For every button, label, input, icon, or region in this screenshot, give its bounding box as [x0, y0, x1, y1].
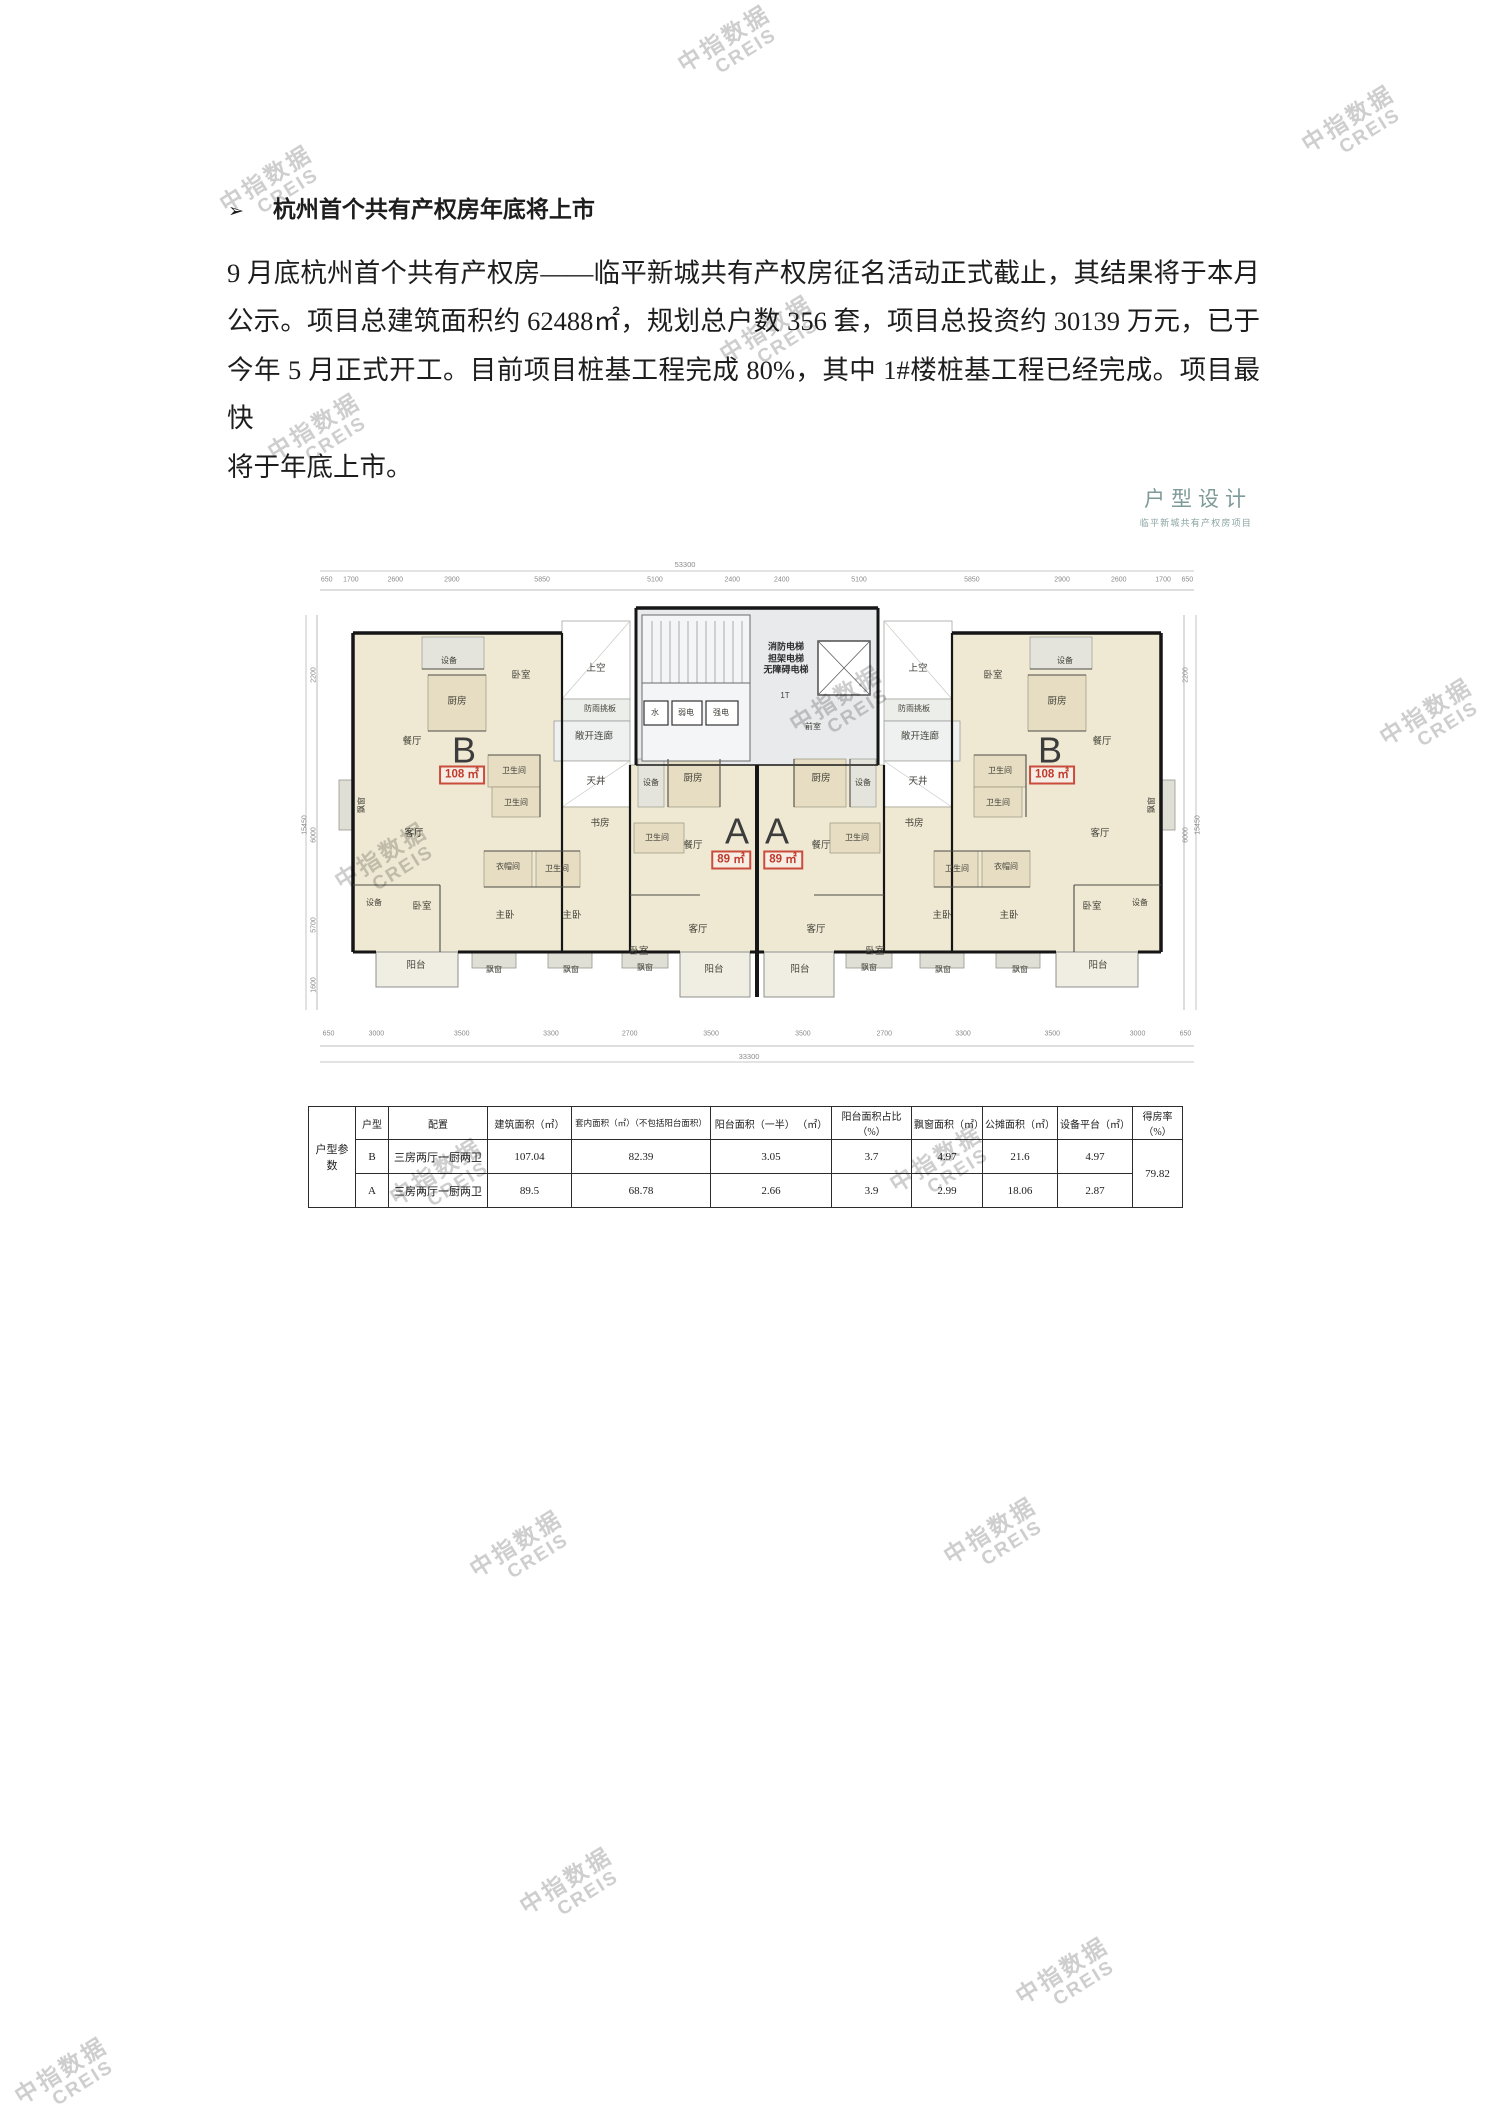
watermark: 中指数据CREIS — [1008, 1927, 1124, 2027]
dimension-label: 2200 — [1181, 667, 1190, 683]
dimension-label: 3300 — [955, 1029, 971, 1038]
room-label: 设备 — [643, 778, 659, 788]
room-label: 阳台 — [704, 964, 723, 976]
room-label: 飘窗 — [357, 797, 367, 813]
room-label: 餐厅 — [811, 840, 830, 852]
table-row-unit-a: A 三房两厅一厨两卫 89.5 68.78 2.66 3.9 2.99 18.0… — [309, 1174, 1183, 1208]
col-header-balcony-ratio: 阳台面积占比（%） — [832, 1107, 912, 1140]
cell-gross-area: 107.04 — [488, 1140, 572, 1174]
unit-area-badge: 89 ㎡ — [711, 851, 751, 870]
room-label: 飘窗 — [861, 963, 877, 973]
room-label: 主卧 — [999, 910, 1018, 922]
room-label: 厨房 — [683, 773, 702, 785]
dimension-total: 33300 — [739, 1052, 760, 1062]
room-label: 书房 — [590, 818, 609, 830]
dimension-label: 6000 — [309, 827, 318, 843]
dimension-label: 3500 — [454, 1029, 470, 1038]
room-label: 厨房 — [811, 773, 830, 785]
room-label: 飘窗 — [935, 965, 951, 975]
dimension-label: 5850 — [964, 575, 980, 584]
floorplan-subtitle: 临平新城共有产权房项目 — [1040, 516, 1252, 529]
room-label: 阳台 — [406, 960, 425, 972]
table-group-label: 户型参数 — [309, 1107, 356, 1208]
dimension-label: 3000 — [369, 1029, 385, 1038]
dimension-label: 2900 — [444, 575, 460, 584]
unit-area-badge: 108 ㎡ — [439, 766, 485, 785]
dimension-label: 3300 — [543, 1029, 559, 1038]
room-label: 飘窗 — [637, 963, 653, 973]
cell-balcony-area: 3.05 — [711, 1140, 832, 1174]
watermark: 中指数据CREIS — [1372, 668, 1488, 768]
room-label: 卧室 — [412, 901, 431, 913]
dimension-label: 5700 — [309, 917, 318, 933]
room-label: 卧室 — [1082, 901, 1101, 913]
dimension-label: 5100 — [851, 575, 867, 584]
floorplan-title-block: 户型设计 临平新城共有产权房项目 — [1040, 483, 1252, 529]
floorplan-figure: 消防电梯 担架电梯 无障碍电梯1T水弱电强电前室上空上空防雨挑板防雨挑板敞开连廊… — [300, 555, 1220, 1087]
col-header-baywindow-area: 飘窗面积（㎡） — [912, 1107, 983, 1140]
unit-spec-table: 户型参数 户型 配置 建筑面积（㎡） 套内面积（㎡）（不包括阳台面积） 阳台面积… — [308, 1106, 1183, 1208]
document-page: 中指数据CREIS中指数据CREIS中指数据CREIS中指数据CREIS中指数据… — [0, 0, 1488, 2104]
room-label: 上空 — [908, 663, 927, 675]
col-header-equipment-platform: 设备平台（㎡） — [1058, 1107, 1133, 1140]
cell-balcony-ratio: 3.9 — [832, 1174, 912, 1208]
floorplan-title: 户型设计 — [1040, 483, 1252, 513]
room-label: 阳台 — [1088, 960, 1107, 972]
room-label: 天井 — [586, 776, 605, 788]
room-label: 敞开连廊 — [901, 731, 939, 743]
dimension-total: 53300 — [675, 560, 696, 570]
room-label: 敞开连廊 — [575, 731, 613, 743]
room-label: 飘窗 — [1012, 965, 1028, 975]
col-header-config: 配置 — [389, 1107, 488, 1140]
room-label: 衣帽间 — [994, 862, 1018, 872]
room-label: 餐厅 — [402, 736, 421, 748]
unit-type-label: A — [765, 809, 789, 856]
cell-config: 三房两厅一厨两卫 — [389, 1174, 488, 1208]
unit-type-label: A — [725, 809, 749, 856]
cell-config: 三房两厅一厨两卫 — [389, 1140, 488, 1174]
dimension-label: 1600 — [309, 977, 318, 993]
cell-shared-area: 18.06 — [983, 1174, 1058, 1208]
room-label: 餐厅 — [1092, 736, 1111, 748]
room-label: 弱电 — [678, 708, 694, 718]
room-label: 书房 — [904, 818, 923, 830]
cell-balcony-area: 2.66 — [711, 1174, 832, 1208]
room-label: 上空 — [586, 663, 605, 675]
room-label: 卧室 — [865, 946, 884, 958]
dimension-label: 650 — [323, 1029, 335, 1038]
arrow-bullet-icon: ➢ — [228, 200, 244, 222]
dimension-label: 5850 — [534, 575, 550, 584]
dimension-label: 2400 — [774, 575, 790, 584]
paragraph-line: 公示。项目总建筑面积约 62488㎡，规划总户数 356 套，项目总投资约 30… — [227, 297, 1260, 345]
room-label: 设备 — [1057, 656, 1073, 666]
table-row-unit-b: B 三房两厅一厨两卫 107.04 82.39 3.05 3.7 4.97 21… — [309, 1140, 1183, 1174]
watermark: 中指数据CREIS — [0, 1542, 3, 1642]
cell-shared-area: 21.6 — [983, 1140, 1058, 1174]
room-label: 飘窗 — [563, 965, 579, 975]
room-label: 阳台 — [790, 964, 809, 976]
col-header-efficiency: 得房率（%） — [1133, 1107, 1183, 1140]
dimension-label: 3500 — [1044, 1029, 1060, 1038]
cell-baywindow-area: 4.97 — [912, 1140, 983, 1174]
room-label: 卫生间 — [504, 798, 528, 808]
watermark: 中指数据CREIS — [936, 1487, 1052, 1587]
watermark: 中指数据CREIS — [0, 925, 3, 1025]
col-header-unit-type: 户型 — [356, 1107, 389, 1140]
col-header-shared-area: 公摊面积（㎡） — [983, 1107, 1058, 1140]
dimension-label: 15450 — [300, 815, 309, 834]
dimension-label: 15450 — [1193, 815, 1202, 834]
room-label: 卫生间 — [502, 766, 526, 776]
dimension-label: 650 — [1180, 1029, 1192, 1038]
cell-efficiency-merged: 79.82 — [1133, 1140, 1183, 1208]
room-label: 消防电梯 担架电梯 无障碍电梯 — [763, 641, 808, 676]
room-label: 卫生间 — [845, 833, 869, 843]
paragraph-line: 今年 5 月正式开工。目前项目桩基工程完成 80%，其中 1#楼桩基工程已经完成… — [227, 346, 1260, 443]
room-label: 主卧 — [562, 910, 581, 922]
dimension-label: 3500 — [703, 1029, 719, 1038]
cell-unit-type: A — [356, 1174, 389, 1208]
cell-equipment-platform: 4.97 — [1058, 1140, 1133, 1174]
dimension-label: 2200 — [309, 667, 318, 683]
dimension-label: 2600 — [1111, 575, 1127, 584]
dimension-label: 6000 — [1181, 827, 1190, 843]
room-label: 主卧 — [932, 910, 951, 922]
cell-equipment-platform: 2.87 — [1058, 1174, 1133, 1208]
section-heading-text: 杭州首个共有产权房年底将上市 — [273, 197, 595, 222]
dimension-label: 1700 — [1155, 575, 1171, 584]
cell-baywindow-area: 2.99 — [912, 1174, 983, 1208]
room-label: 水 — [651, 708, 659, 718]
room-label: 客厅 — [806, 924, 825, 936]
room-label: 飘窗 — [1147, 797, 1157, 813]
watermark: 中指数据CREIS — [670, 0, 786, 95]
col-header-balcony-area: 阳台面积（一半） （㎡） — [711, 1107, 832, 1140]
room-label: 前室 — [805, 722, 821, 732]
room-label: 卫生间 — [986, 798, 1010, 808]
room-label: 设备 — [855, 778, 871, 788]
room-label: 餐厅 — [683, 840, 702, 852]
cell-gross-area: 89.5 — [488, 1174, 572, 1208]
room-label: 设备 — [441, 656, 457, 666]
section-heading: ➢杭州首个共有产权房年底将上市 — [228, 190, 595, 224]
room-label: 衣帽间 — [496, 862, 520, 872]
room-label: 卫生间 — [988, 766, 1012, 776]
room-label: 客厅 — [1090, 828, 1109, 840]
cell-interior-area: 68.78 — [572, 1174, 711, 1208]
cell-interior-area: 82.39 — [572, 1140, 711, 1174]
watermark: 中指数据CREIS — [7, 2027, 123, 2104]
dimension-label: 1700 — [343, 575, 359, 584]
room-label: 卧室 — [511, 670, 530, 682]
room-label: 设备 — [1132, 898, 1148, 908]
table-header-row: 户型参数 户型 配置 建筑面积（㎡） 套内面积（㎡）（不包括阳台面积） 阳台面积… — [309, 1107, 1183, 1140]
dimension-label: 2600 — [387, 575, 403, 584]
room-label: 防雨挑板 — [584, 704, 616, 714]
floorplan-labels: 消防电梯 担架电梯 无障碍电梯1T水弱电强电前室上空上空防雨挑板防雨挑板敞开连廊… — [300, 555, 1220, 1087]
unit-area-badge: 108 ㎡ — [1029, 766, 1075, 785]
room-label: 飘窗 — [486, 965, 502, 975]
room-label: 强电 — [713, 708, 729, 718]
room-label: 天井 — [908, 776, 927, 788]
dimension-label: 5100 — [647, 575, 663, 584]
room-label: 1T — [780, 691, 789, 701]
cell-balcony-ratio: 3.7 — [832, 1140, 912, 1174]
room-label: 厨房 — [1047, 696, 1066, 708]
room-label: 卫生间 — [945, 864, 969, 874]
room-label: 设备 — [366, 898, 382, 908]
col-header-interior-area: 套内面积（㎡）（不包括阳台面积） — [572, 1107, 711, 1140]
room-label: 卧室 — [629, 946, 648, 958]
watermark: 中指数据CREIS — [1294, 75, 1410, 175]
body-paragraph: 9 月底杭州首个共有产权房——临平新城共有产权房征名活动正式截止，其结果将于本月… — [227, 249, 1260, 491]
dimension-label: 650 — [321, 575, 333, 584]
room-label: 客厅 — [404, 828, 423, 840]
room-label: 厨房 — [447, 696, 466, 708]
room-label: 主卧 — [495, 910, 514, 922]
room-label: 卫生间 — [545, 864, 569, 874]
dimension-label: 3000 — [1130, 1029, 1146, 1038]
col-header-gross-area: 建筑面积（㎡） — [488, 1107, 572, 1140]
room-label: 卫生间 — [645, 833, 669, 843]
dimension-label: 2700 — [876, 1029, 892, 1038]
room-label: 卧室 — [983, 670, 1002, 682]
dimension-label: 2900 — [1054, 575, 1070, 584]
room-label: 客厅 — [688, 924, 707, 936]
unit-area-badge: 89 ㎡ — [763, 851, 803, 870]
dimension-label: 3500 — [795, 1029, 811, 1038]
dimension-label: 650 — [1181, 575, 1193, 584]
room-label: 防雨挑板 — [898, 704, 930, 714]
watermark: 中指数据CREIS — [462, 1500, 578, 1600]
paragraph-line: 9 月底杭州首个共有产权房——临平新城共有产权房征名活动正式截止，其结果将于本月 — [227, 249, 1260, 297]
cell-unit-type: B — [356, 1140, 389, 1174]
dimension-label: 2400 — [724, 575, 740, 584]
dimension-label: 2700 — [622, 1029, 638, 1038]
watermark: 中指数据CREIS — [512, 1837, 628, 1937]
